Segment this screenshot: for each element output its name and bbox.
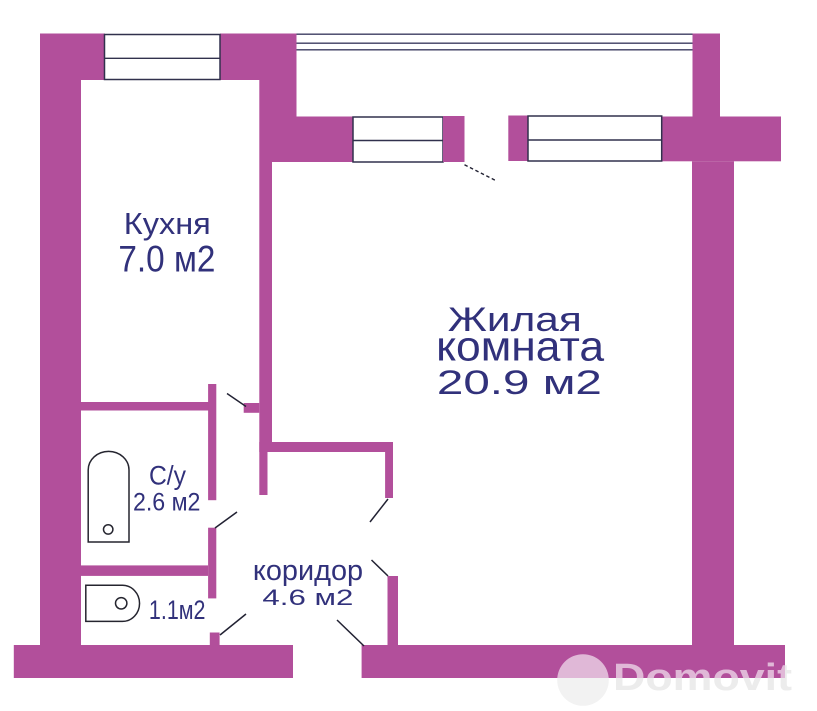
svg-text:коридор: коридор — [253, 554, 363, 586]
svg-text:Кухня: Кухня — [124, 207, 211, 241]
svg-text:Domovit: Domovit — [613, 657, 792, 699]
svg-text:комната: комната — [436, 323, 605, 369]
svg-text:1.1м2: 1.1м2 — [149, 595, 206, 625]
svg-text:4.6 м2: 4.6 м2 — [262, 585, 353, 610]
svg-text:20.9 м2: 20.9 м2 — [437, 364, 602, 402]
svg-text:7.0 м2: 7.0 м2 — [118, 238, 215, 279]
svg-text:С/у: С/у — [149, 461, 187, 491]
svg-text:2.6 м2: 2.6 м2 — [133, 489, 201, 517]
